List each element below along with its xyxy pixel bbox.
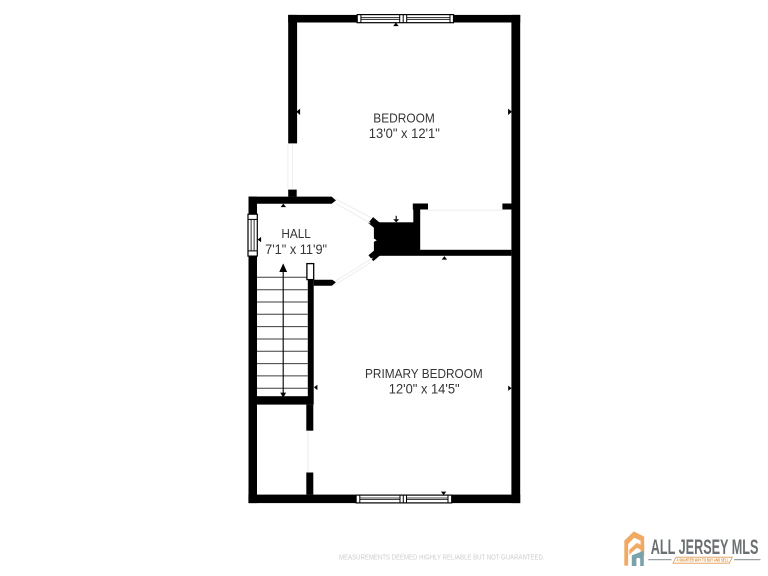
- svg-text:BEDROOM: BEDROOM: [373, 110, 435, 125]
- svg-text:ALL JERSEY MLS: ALL JERSEY MLS: [651, 536, 759, 559]
- svg-text:MEASUREMENTS DEEMED HIGHLY REL: MEASUREMENTS DEEMED HIGHLY RELIABLE BUT …: [339, 554, 545, 561]
- svg-text:13'0" x 12'1": 13'0" x 12'1": [369, 126, 440, 141]
- svg-text:7'1" x 11'9": 7'1" x 11'9": [265, 242, 327, 257]
- svg-text:PRIMARY BEDROOM: PRIMARY BEDROOM: [365, 366, 483, 381]
- svg-text:12'0" x 14'5": 12'0" x 14'5": [389, 382, 460, 397]
- svg-text:A SMARTER WAY TO BUY AND SELL: A SMARTER WAY TO BUY AND SELL: [677, 558, 729, 564]
- svg-text:HALL: HALL: [281, 226, 311, 241]
